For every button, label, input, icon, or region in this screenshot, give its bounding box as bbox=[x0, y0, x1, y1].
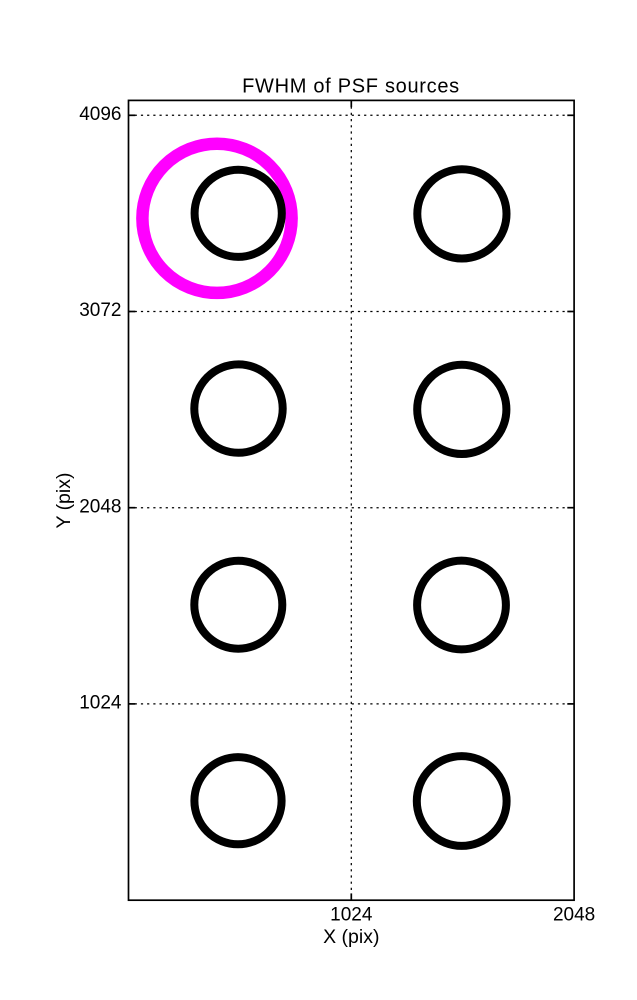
svg-text:1024: 1024 bbox=[79, 693, 122, 714]
svg-text:FWHM of PSF sources: FWHM of PSF sources bbox=[242, 76, 460, 98]
svg-text:Y (pix): Y (pix) bbox=[53, 473, 75, 529]
svg-text:1024: 1024 bbox=[330, 904, 373, 925]
svg-text:3072: 3072 bbox=[79, 300, 121, 321]
svg-text:2048: 2048 bbox=[79, 496, 121, 517]
svg-text:2048: 2048 bbox=[553, 904, 595, 925]
svg-text:X (pix): X (pix) bbox=[323, 926, 379, 948]
svg-text:4096: 4096 bbox=[79, 104, 121, 125]
